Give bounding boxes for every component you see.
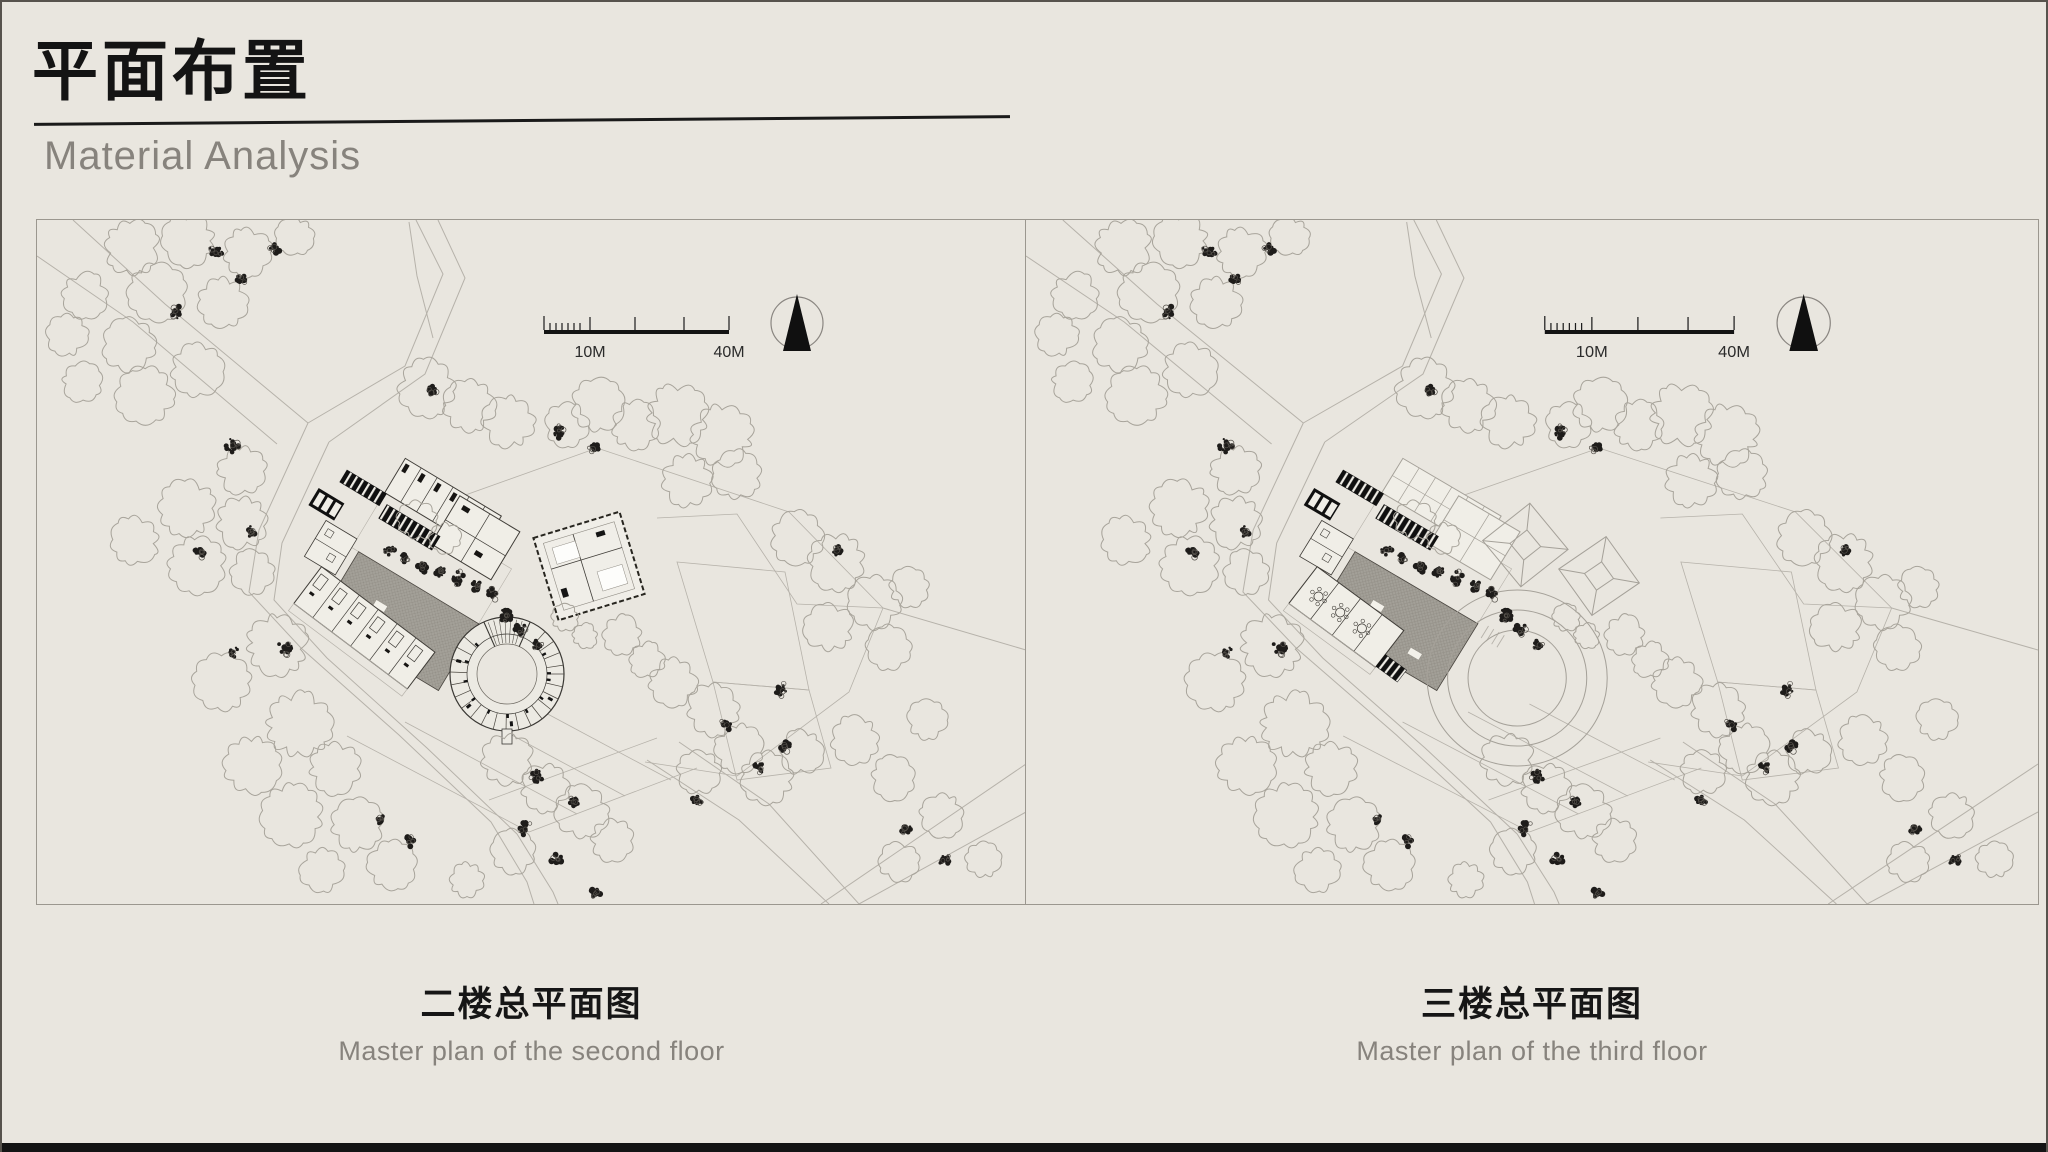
tree-icon: [1327, 797, 1381, 852]
dark-tree-icon: [433, 566, 446, 577]
tree-icon: [1716, 449, 1767, 500]
dark-tree-icon: [1240, 525, 1252, 538]
tree-icon: [1809, 602, 1861, 651]
road-line: [1026, 256, 1272, 444]
tree-icon: [1190, 276, 1243, 328]
tree-icon: [259, 783, 323, 848]
ring-building: [450, 617, 564, 744]
tree-icon: [1159, 536, 1219, 596]
dark-tree-icon: [1549, 852, 1565, 865]
road-line: [37, 256, 277, 444]
tree-icon: [1260, 690, 1330, 757]
parcel-line: [657, 514, 883, 608]
tree-icon: [1785, 729, 1831, 775]
dark-tree-icon: [939, 854, 952, 865]
tree-icon: [907, 699, 948, 741]
road-line: [1407, 222, 1432, 338]
caption-second-floor: 二楼总平面图 Master plan of the second floor: [37, 976, 1026, 1067]
dark-tree-icon: [193, 547, 207, 560]
tree-icon: [1898, 566, 1939, 607]
parking-line: [1468, 712, 1628, 796]
road-line: [1303, 220, 1441, 423]
road-line: [1892, 608, 2038, 650]
tree-icon: [1592, 818, 1636, 862]
parking-line: [489, 738, 657, 800]
scale-bar-ticks: [1545, 316, 1734, 330]
tree-icon: [807, 534, 864, 593]
road-line: [821, 764, 1026, 904]
tree-icon: [590, 818, 633, 862]
tree-icon: [62, 361, 103, 402]
road-line: [1828, 764, 2038, 904]
scale-bar-ticks: [544, 316, 729, 330]
tree-icon: [865, 624, 912, 670]
scale-bar: [544, 316, 729, 334]
parcel-line: [1660, 514, 1891, 608]
tree-icon: [919, 793, 964, 839]
dark-tree-icon: [589, 887, 603, 899]
caption-en: Master plan of the second floor: [37, 1036, 1026, 1067]
tree-icon: [102, 317, 157, 373]
scale-label-40m: 40M: [713, 344, 744, 361]
tree-icon: [481, 395, 536, 449]
scale-label-40m: 40M: [1718, 343, 1750, 361]
tree-icon: [161, 220, 215, 269]
tree-icon: [170, 342, 225, 398]
tree-icon: [1209, 496, 1262, 550]
road-network: [1026, 220, 2038, 904]
road-line: [883, 608, 1026, 650]
tree-icon: [197, 276, 249, 328]
dark-tree-icon: [277, 642, 293, 658]
parking-line: [347, 736, 529, 832]
parking-line: [1343, 736, 1529, 832]
tree-icon: [965, 841, 1002, 878]
tree-icon: [1095, 220, 1151, 276]
tree-icon: [1573, 377, 1628, 432]
tree-icon: [779, 729, 824, 775]
dark-tree-icon: [471, 580, 482, 593]
tree-icon: [545, 402, 590, 448]
tree-icon: [1887, 841, 1930, 882]
tree-icon: [1093, 317, 1149, 373]
scale-bar: [1545, 316, 1734, 334]
dark-tree-icon: [1217, 438, 1235, 454]
tree-icon: [331, 797, 384, 852]
dark-tree-icon: [774, 681, 787, 698]
tree-icon: [1814, 534, 1873, 593]
tree-icon: [104, 220, 159, 276]
tree-icon: [1975, 841, 2013, 878]
parcel-line: [1681, 562, 1816, 690]
tree-icon: [223, 227, 272, 278]
parking-line: [1489, 738, 1661, 800]
parking-line: [529, 768, 697, 832]
building-complex: [1243, 428, 1532, 710]
tree-icon: [167, 536, 226, 596]
tree-icon: [830, 715, 879, 766]
caption-zh: 二楼总平面图: [37, 976, 1026, 1027]
dark-tree-icon: [208, 246, 224, 257]
tree-icon: [157, 479, 216, 538]
tree-icon: [847, 574, 902, 630]
tree-icon: [690, 404, 754, 467]
tree-icon: [629, 641, 665, 677]
tree-icon: [1546, 402, 1592, 448]
dark-tree-icon: [518, 820, 532, 837]
dark-tree-icon: [1201, 246, 1217, 257]
tree-icon: [712, 449, 762, 500]
parcel-line: [677, 562, 809, 690]
detached-building: [533, 512, 644, 621]
dark-tree-icon: [832, 544, 843, 556]
tree-icon: [1051, 361, 1093, 402]
panel-second-floor: 10M 40M: [37, 220, 1026, 904]
road-line: [679, 742, 859, 904]
dark-tree-icon: [1402, 834, 1414, 849]
dark-tree-icon: [383, 546, 397, 557]
page-subtitle: Material Analysis: [44, 134, 361, 179]
tree-icon: [1838, 715, 1888, 766]
dark-tree-icon: [588, 442, 601, 454]
tree-icon: [647, 384, 709, 447]
tree-icon: [1916, 699, 1958, 741]
dark-tree-icon: [720, 719, 732, 732]
dark-tree-icon: [1380, 546, 1394, 557]
road-network: [37, 220, 1026, 904]
tree-icon: [803, 602, 854, 651]
tree-icon: [878, 841, 920, 882]
dark-tree-icon: [553, 424, 566, 441]
dark-tree-icon: [1450, 569, 1465, 587]
dark-tree-icon: [1222, 647, 1233, 659]
scale-label-10m: 10M: [1576, 343, 1608, 361]
parking-line: [1403, 722, 1579, 814]
dark-tree-icon: [486, 586, 498, 602]
dark-tree-icon: [224, 438, 242, 454]
dark-tree-icon: [1373, 814, 1382, 825]
dark-tree-icon: [400, 552, 410, 564]
presentation-slide: 平面布置 Material Analysis 10M 40M: [0, 0, 2048, 1152]
north-arrow-icon: [1777, 294, 1830, 351]
tree-icon: [1880, 755, 1925, 802]
tree-icon: [1051, 271, 1099, 319]
tree-icon: [1253, 783, 1318, 848]
dark-tree-icon: [1262, 242, 1277, 256]
tree-icon: [490, 828, 536, 875]
tree-icon: [61, 271, 108, 319]
dark-tree-icon: [427, 384, 439, 397]
dark-tree-icon: [1533, 639, 1545, 650]
plan-drawing-layer: [37, 220, 1026, 904]
louver-bar: [1336, 470, 1384, 506]
tree-icon: [1555, 784, 1612, 839]
caption-en: Master plan of the third floor: [1026, 1036, 2038, 1067]
dark-tree-icon: [1780, 681, 1793, 698]
dark-tree-icon: [899, 824, 913, 835]
dark-tree-icon: [376, 814, 385, 825]
dark-tree-icon: [1228, 274, 1241, 285]
tree-icon: [1217, 227, 1268, 278]
caption-zh: 三楼总平面图: [1026, 976, 2038, 1027]
dark-tree-icon: [1569, 796, 1581, 808]
scale-label-10m: 10M: [574, 344, 605, 361]
tree-icon: [309, 741, 361, 796]
panel-third-floor: 10M 40M: [1026, 220, 2038, 904]
dark-tree-icon: [268, 242, 283, 256]
pyramid-roof: [1552, 530, 1647, 623]
tree-icon: [554, 784, 610, 839]
dark-tree-icon: [1397, 552, 1407, 564]
site-plan-third-floor: 10M 40M: [1026, 220, 2038, 904]
dark-tree-icon: [1758, 762, 1770, 775]
tree-icon: [216, 496, 268, 550]
dark-tree-icon: [500, 608, 514, 623]
tree-icon: [687, 682, 740, 737]
dark-tree-icon: [548, 852, 564, 865]
dark-tree-icon: [1908, 824, 1922, 835]
plan-drawing-layer: [1026, 220, 2038, 904]
dark-tree-icon: [1185, 547, 1199, 560]
parking-line: [405, 722, 577, 814]
dark-tree-icon: [1589, 442, 1602, 454]
parking-line: [1529, 768, 1701, 832]
site-plan-second-floor: 10M 40M: [37, 220, 1026, 904]
tree-icon: [661, 454, 713, 508]
tree-icon: [1215, 736, 1276, 795]
tree-icon: [1928, 793, 1974, 839]
dark-tree-icon: [246, 525, 257, 538]
tree-icon: [449, 862, 484, 898]
tree-icon: [1480, 733, 1534, 786]
tree-icon: [1665, 454, 1718, 508]
tree-icon: [1152, 220, 1207, 269]
tree-icon: [648, 657, 699, 708]
tree-icon: [222, 736, 282, 795]
tree-icon: [1480, 395, 1537, 449]
title-divider-line: [34, 115, 1010, 126]
dark-tree-icon: [1425, 384, 1438, 397]
tree-icon: [1552, 603, 1580, 631]
north-arrow-icon: [771, 294, 823, 351]
dark-tree-icon: [690, 795, 703, 806]
caption-third-floor: 三楼总平面图 Master plan of the third floor: [1026, 976, 2038, 1067]
dark-tree-icon: [1272, 642, 1288, 658]
tree-icon: [571, 377, 624, 432]
tree-icon: [1105, 366, 1168, 425]
road-line: [647, 760, 829, 904]
dark-tree-icon: [1694, 795, 1708, 806]
scale-bar-line: [1545, 330, 1734, 334]
road-line: [308, 220, 443, 423]
dark-tree-icon: [451, 569, 465, 587]
dark-tree-icon: [568, 796, 580, 808]
tree-icon: [1650, 384, 1714, 447]
road-line: [1650, 760, 1836, 904]
tree-icon: [740, 750, 794, 806]
dark-tree-icon: [1486, 586, 1498, 602]
tree-icon: [46, 313, 90, 356]
tree-icon: [1632, 641, 1669, 677]
parking-line: [529, 704, 671, 780]
tree-icon: [1873, 624, 1921, 670]
tree-icon: [1149, 479, 1209, 538]
tree-icon: [114, 366, 175, 425]
parking-line: [1529, 704, 1674, 780]
tree-icon: [1745, 750, 1800, 806]
tree-icon: [1489, 828, 1536, 875]
dark-tree-icon: [1554, 424, 1567, 441]
dark-tree-icon: [1840, 544, 1852, 556]
bottom-accent-bar: [2, 1143, 2046, 1152]
dark-tree-icon: [1470, 580, 1481, 593]
tree-icon: [1777, 509, 1832, 565]
dark-tree-icon: [1591, 887, 1606, 899]
vegetation-layer: [46, 220, 1002, 899]
tree-icon: [1210, 446, 1262, 495]
tree-icon: [1441, 378, 1497, 433]
tree-icon: [110, 515, 159, 565]
road-line: [409, 222, 433, 338]
tree-icon: [1101, 515, 1151, 565]
tree-icon: [1184, 653, 1246, 712]
tree-icon: [1304, 741, 1357, 796]
tree-icon: [1604, 614, 1645, 656]
louver-bar: [340, 470, 387, 506]
tree-icon: [1448, 862, 1484, 898]
dark-tree-icon: [752, 762, 763, 775]
tree-icon: [299, 847, 345, 892]
tree-icon: [191, 653, 251, 712]
tree-icon: [1691, 682, 1746, 737]
tree-icon: [443, 378, 497, 433]
dark-tree-icon: [1948, 854, 1961, 865]
dark-tree-icon: [404, 834, 416, 849]
tree-icon: [1694, 404, 1760, 467]
tree-icon: [1294, 847, 1341, 892]
dark-tree-icon: [1518, 820, 1533, 837]
tree-icon: [602, 614, 642, 656]
dark-tree-icon: [1413, 562, 1427, 575]
tree-icon: [266, 690, 335, 757]
dark-tree-icon: [1432, 566, 1445, 577]
tree-icon: [1855, 574, 1912, 630]
tree-icon: [771, 509, 825, 565]
road-line: [1683, 742, 1867, 904]
dark-tree-icon: [1513, 623, 1529, 637]
tree-icon: [871, 755, 915, 802]
dark-tree-icon: [235, 274, 248, 285]
tree-icon: [572, 622, 597, 648]
tree-icon: [1035, 313, 1080, 356]
dark-tree-icon: [229, 647, 239, 659]
dark-tree-icon: [1499, 608, 1513, 623]
tree-icon: [217, 446, 267, 495]
tree-icon: [1614, 399, 1664, 451]
tree-icon: [1651, 657, 1703, 708]
dark-tree-icon: [1725, 719, 1737, 732]
dark-tree-icon: [415, 562, 429, 575]
scale-bar-line: [544, 330, 729, 334]
tree-icon: [612, 399, 661, 451]
tree-icon: [889, 566, 929, 607]
page-title: 平面布置: [32, 18, 312, 114]
tree-icon: [1162, 342, 1218, 398]
